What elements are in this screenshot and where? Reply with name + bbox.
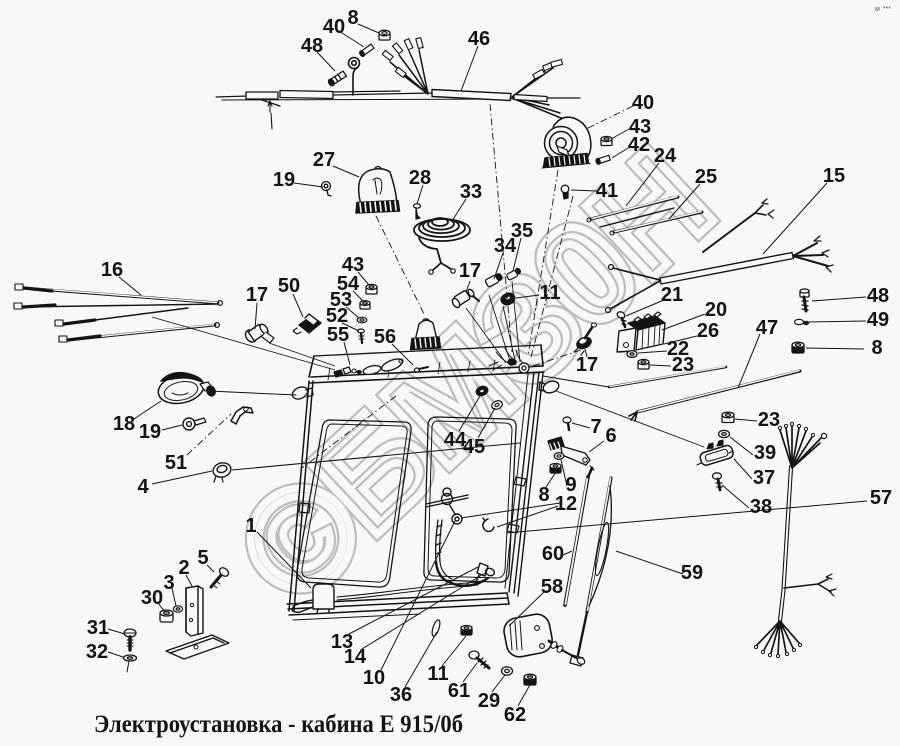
svg-text:19: 19	[273, 169, 295, 191]
svg-text:4: 4	[137, 476, 149, 498]
svg-text:Электроустановка - кабина Е 91: Электроустановка - кабина Е 915/0б	[94, 711, 463, 738]
svg-text:20: 20	[705, 299, 727, 321]
svg-text:56: 56	[374, 326, 396, 348]
svg-text:15: 15	[823, 165, 845, 187]
svg-text:14: 14	[344, 646, 367, 668]
svg-text:2: 2	[178, 557, 189, 579]
svg-text:45: 45	[463, 436, 485, 458]
svg-text:41: 41	[596, 180, 618, 202]
svg-text:39: 39	[754, 442, 776, 464]
svg-text:40: 40	[632, 92, 654, 114]
svg-text:17: 17	[459, 260, 481, 282]
svg-text:26: 26	[697, 320, 719, 342]
svg-text:11: 11	[427, 663, 448, 685]
svg-text:24: 24	[654, 145, 677, 167]
svg-text:61: 61	[448, 680, 470, 702]
svg-text:31: 31	[87, 617, 109, 639]
svg-text:40: 40	[323, 16, 345, 38]
svg-text:м***: м***	[875, 6, 891, 13]
svg-text:23: 23	[758, 409, 780, 431]
svg-text:36: 36	[390, 684, 412, 706]
svg-text:38: 38	[750, 496, 772, 518]
svg-text:3: 3	[163, 572, 174, 594]
svg-text:34: 34	[494, 235, 517, 257]
svg-text:33: 33	[460, 181, 482, 203]
svg-text:27: 27	[313, 149, 335, 171]
svg-text:47: 47	[756, 317, 778, 339]
svg-text:32: 32	[86, 641, 108, 663]
svg-text:12: 12	[555, 493, 577, 515]
svg-text:37: 37	[753, 467, 775, 489]
svg-text:30: 30	[141, 587, 163, 609]
svg-text:1: 1	[245, 515, 256, 537]
svg-text:17: 17	[246, 284, 268, 306]
svg-text:48: 48	[301, 35, 323, 57]
svg-text:21: 21	[661, 284, 683, 306]
svg-text:46: 46	[468, 28, 490, 50]
svg-text:50: 50	[278, 275, 300, 297]
svg-text:18: 18	[113, 413, 135, 435]
svg-text:59: 59	[681, 562, 703, 584]
svg-text:58: 58	[541, 576, 563, 598]
svg-text:60: 60	[542, 543, 564, 565]
svg-text:6: 6	[605, 425, 616, 447]
svg-text:49: 49	[867, 309, 889, 331]
svg-text:8: 8	[538, 484, 549, 506]
svg-text:62: 62	[504, 704, 526, 726]
svg-text:19: 19	[139, 421, 161, 443]
svg-text:55: 55	[327, 324, 349, 346]
svg-text:48: 48	[867, 285, 889, 307]
svg-text:5: 5	[197, 547, 208, 569]
svg-text:7: 7	[590, 416, 601, 438]
svg-text:57: 57	[870, 487, 892, 509]
svg-text:16: 16	[101, 259, 123, 281]
svg-text:25: 25	[695, 166, 717, 188]
svg-text:51: 51	[165, 452, 187, 474]
svg-text:42: 42	[628, 134, 650, 156]
svg-text:28: 28	[409, 167, 431, 189]
svg-text:8: 8	[347, 7, 358, 29]
svg-text:29: 29	[478, 690, 500, 712]
svg-text:8: 8	[871, 337, 882, 359]
svg-text:11: 11	[539, 282, 560, 304]
svg-text:23: 23	[672, 354, 694, 376]
svg-text:17: 17	[576, 354, 598, 376]
svg-text:10: 10	[363, 667, 385, 689]
